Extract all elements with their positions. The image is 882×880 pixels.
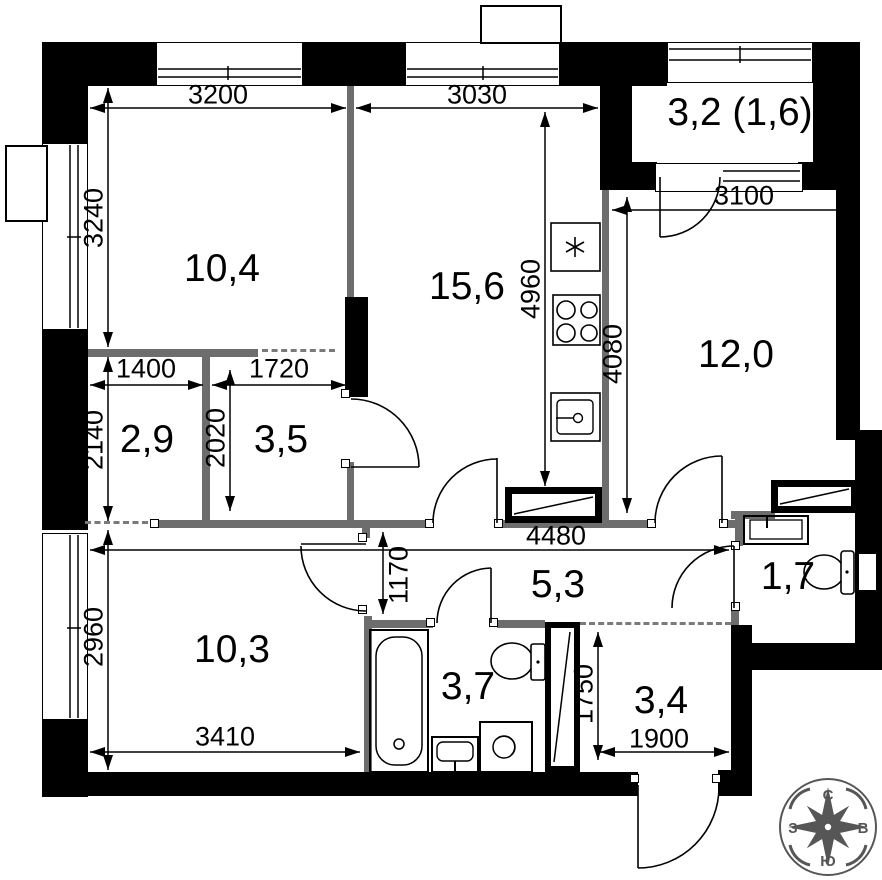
dim-label-1400: 1400 (116, 354, 176, 385)
wall-right-upper (836, 83, 860, 440)
room-label-10-3: 10,3 (194, 628, 270, 672)
door-entrance (638, 785, 719, 868)
partition-kitchen-left (347, 86, 354, 297)
room-label-1-7: 1,7 (761, 555, 815, 599)
compass-south-label: Ю (820, 853, 835, 870)
wall-bottom-right-of-entrance (718, 770, 752, 796)
dim-label-1750: 1750 (569, 664, 600, 724)
room-label-10-4: 10,4 (184, 247, 260, 291)
dim-label-3030: 3030 (447, 80, 507, 111)
jamb (712, 774, 721, 783)
partition-bathroom-top-l (372, 620, 433, 628)
washing-machine-icon (480, 722, 532, 772)
jamb (341, 459, 350, 468)
partition-corridor-top-left (153, 520, 433, 528)
room-label-2-9: 2,9 (120, 418, 174, 462)
wall-left-upper (42, 86, 88, 143)
wall-hallway-right (731, 625, 752, 776)
door-wc (672, 546, 734, 608)
duct-wc-inner (778, 487, 851, 506)
exterior-box-left (5, 145, 48, 222)
room-label-3-4: 3,4 (634, 679, 688, 723)
dashed-opening-room-top-left (262, 349, 335, 352)
kitchen-fixtures (551, 223, 600, 441)
room-label-balcony: 3,2 (1,6) (667, 91, 812, 135)
compass-north-label: С (823, 787, 834, 804)
window-glazing (67, 46, 811, 718)
room-label-3-5: 3,5 (254, 418, 308, 462)
door-room-right (655, 456, 722, 523)
wall-top-left-corner (42, 42, 156, 86)
dim-label-1170: 1170 (384, 546, 415, 604)
door-room-bottom-left (301, 544, 366, 611)
wall-top-right-of-kitchen (560, 42, 667, 86)
room-label-15-6: 15,6 (429, 265, 505, 309)
floor-plan: С Ю В З 10,4 15,6 3,2 (1,6) 12,0 2,9 3,5… (0, 0, 882, 880)
dim-label-1720: 1720 (249, 354, 309, 385)
jamb (731, 602, 740, 611)
wall-bottom-main (42, 772, 638, 796)
dashed-opening-hallway (580, 622, 731, 625)
dim-label-4960: 4960 (516, 259, 547, 319)
wc-sink-icon (744, 516, 808, 544)
bath-sink-icon (432, 737, 478, 772)
wall-wc-bottom (752, 643, 857, 670)
compass-west-label: З (788, 820, 797, 837)
jamb (719, 519, 728, 528)
partition-bathroom-left (364, 616, 372, 772)
jamb (647, 519, 656, 528)
exterior-box-top (480, 5, 562, 44)
jamb (630, 774, 639, 783)
dim-label-3410: 3410 (195, 722, 255, 753)
compass-rose: С Ю В З (780, 779, 876, 875)
door-kitchen (433, 458, 497, 523)
fridge-icon (551, 223, 600, 271)
window-balcony-top (667, 42, 813, 83)
jamb (150, 519, 159, 528)
jamb (731, 541, 740, 550)
wall-balcony-wing (602, 162, 657, 190)
wall-top-middle (303, 42, 405, 86)
stove-icon (553, 295, 600, 345)
compass-east-label: В (858, 820, 869, 837)
dim-label-2020: 2020 (201, 408, 232, 468)
wall-pier-hall (345, 297, 368, 397)
toilet-bathroom-icon (491, 643, 545, 680)
dim-label-2960: 2960 (79, 607, 110, 667)
dashed-opening-wardrobe (85, 521, 148, 524)
kitchen-sink-icon (551, 393, 600, 441)
dim-label-4080: 4080 (598, 324, 629, 384)
room-label-3-7: 3,7 (441, 665, 495, 709)
jamb (341, 389, 350, 398)
dim-label-3240: 3240 (79, 188, 110, 248)
partition-bathroom-top-r (497, 620, 545, 628)
bathtub-icon (370, 630, 428, 772)
jamb (425, 519, 434, 528)
jamb (494, 519, 503, 528)
partition-hall-right-lower (347, 462, 354, 523)
wall-right-lower (855, 430, 882, 670)
jamb (489, 618, 498, 627)
room-label-12-0: 12,0 (698, 333, 774, 377)
dim-label-4480: 4480 (526, 521, 586, 552)
dim-label-3200: 3200 (188, 80, 248, 111)
dim-label-2140: 2140 (79, 410, 110, 470)
cabinet-kitchen-inner (512, 494, 595, 516)
dim-label-1900: 1900 (629, 724, 689, 755)
room-label-5-3: 5,3 (531, 563, 585, 607)
dim-label-3100: 3100 (714, 181, 774, 212)
door-bathroom (437, 568, 491, 623)
door-hall-inner (351, 399, 419, 467)
jamb (358, 605, 367, 614)
wall-niche-wc (857, 552, 878, 592)
jamb (358, 533, 367, 542)
jamb (426, 618, 435, 627)
